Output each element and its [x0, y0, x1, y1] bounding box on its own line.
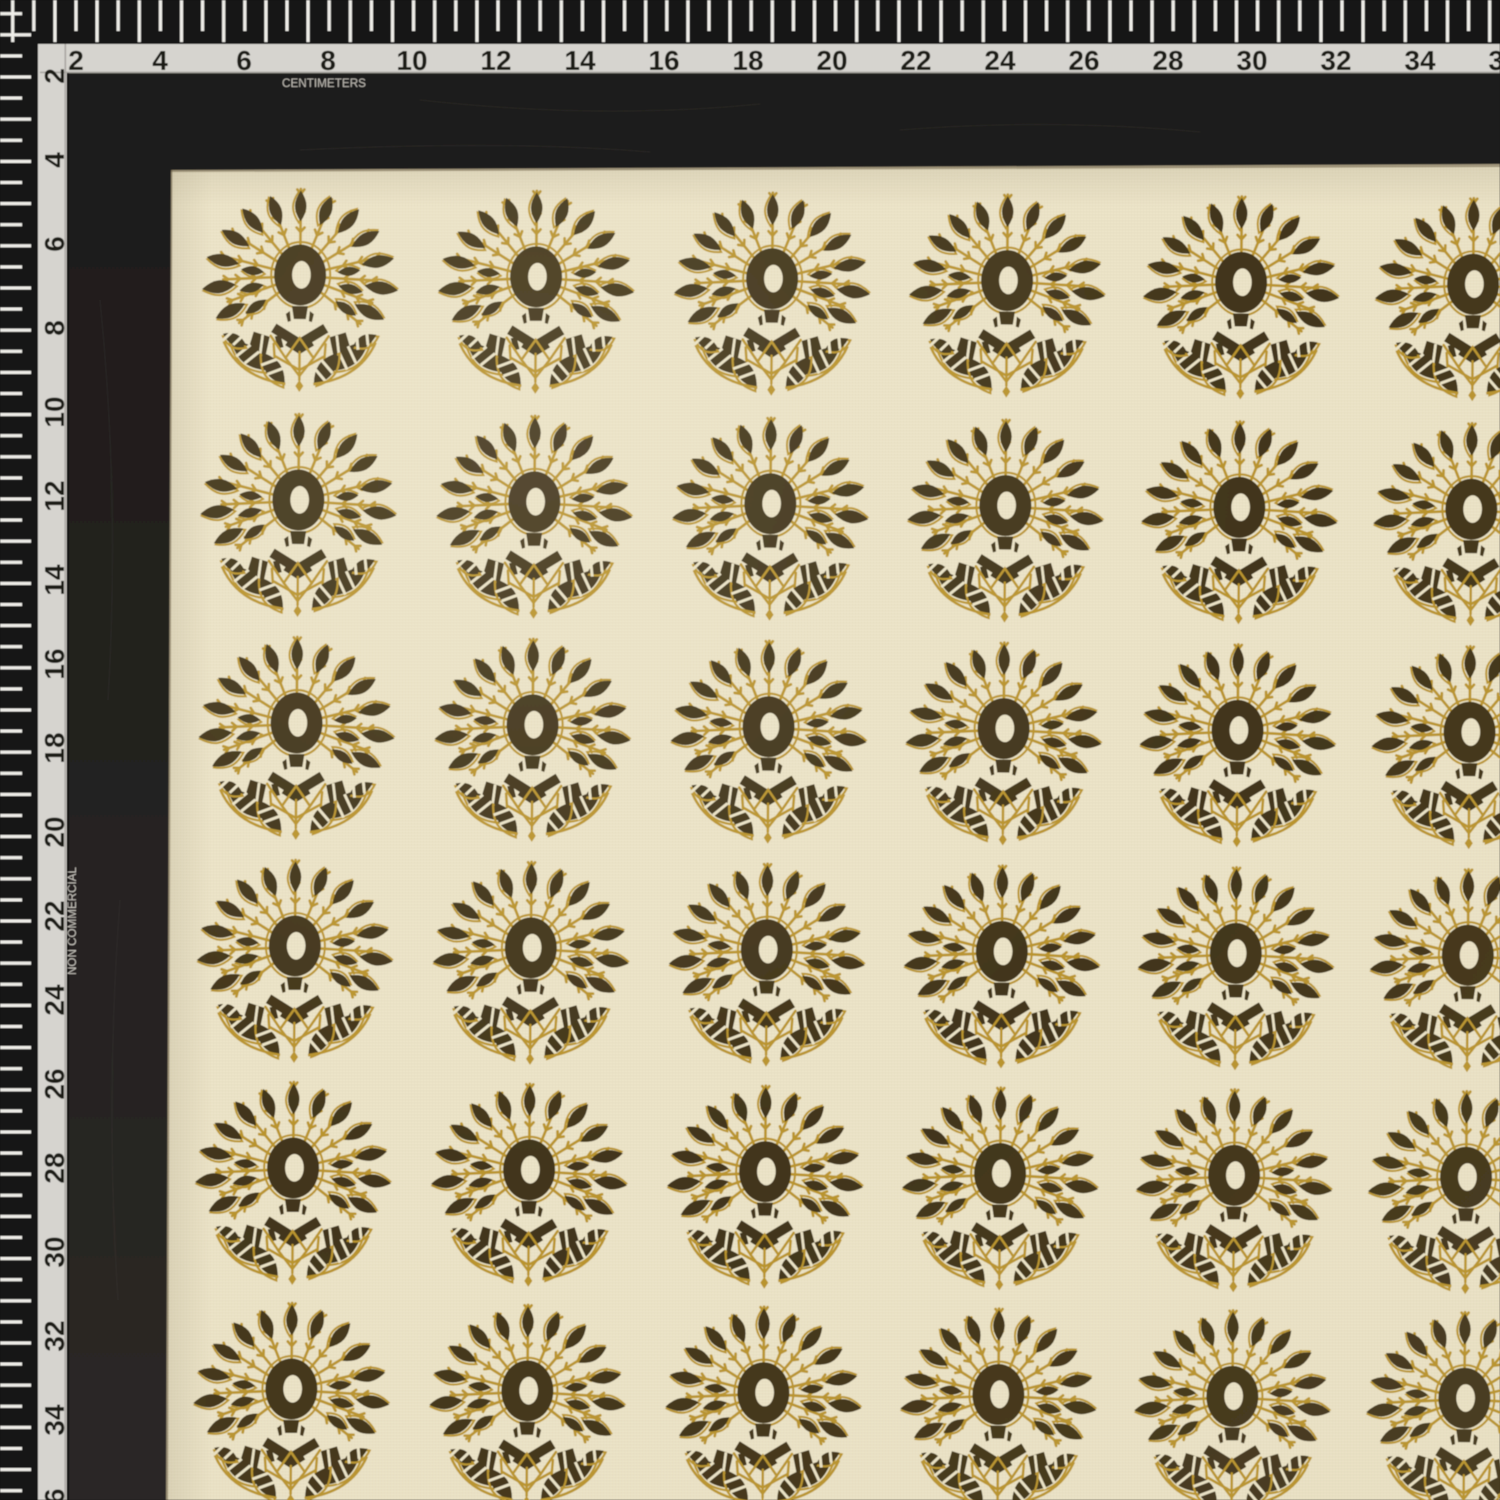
- svg-text:30: 30: [39, 1236, 70, 1267]
- svg-text:32: 32: [1320, 45, 1351, 76]
- svg-text:34: 34: [39, 1404, 70, 1436]
- svg-text:20: 20: [816, 45, 847, 76]
- svg-text:32: 32: [39, 1320, 70, 1351]
- svg-text:12: 12: [480, 45, 511, 76]
- svg-text:6: 6: [236, 45, 252, 76]
- svg-text:28: 28: [1152, 45, 1183, 76]
- svg-text:16: 16: [39, 648, 70, 679]
- svg-text:36: 36: [1488, 45, 1500, 76]
- svg-text:2: 2: [39, 68, 70, 84]
- svg-text:14: 14: [564, 45, 596, 76]
- svg-text:4: 4: [39, 152, 70, 168]
- svg-text:14: 14: [39, 564, 70, 596]
- svg-text:18: 18: [39, 732, 70, 763]
- svg-text:36: 36: [39, 1488, 70, 1500]
- svg-text:26: 26: [1068, 45, 1099, 76]
- svg-text:30: 30: [1236, 45, 1267, 76]
- svg-text:8: 8: [320, 45, 336, 76]
- svg-text:CENTIMETERS: CENTIMETERS: [282, 76, 366, 90]
- svg-text:16: 16: [648, 45, 679, 76]
- svg-text:12: 12: [39, 480, 70, 511]
- svg-text:34: 34: [1404, 45, 1436, 76]
- svg-text:28: 28: [39, 1152, 70, 1183]
- svg-text:8: 8: [39, 320, 70, 336]
- svg-text:24: 24: [39, 984, 70, 1016]
- svg-text:2: 2: [68, 45, 84, 76]
- svg-text:22: 22: [39, 900, 70, 931]
- svg-text:10: 10: [396, 45, 427, 76]
- svg-text:4: 4: [152, 45, 168, 76]
- svg-text:24: 24: [984, 45, 1016, 76]
- svg-text:26: 26: [39, 1068, 70, 1099]
- svg-text:20: 20: [39, 816, 70, 847]
- svg-text:6: 6: [39, 236, 70, 252]
- svg-text:10: 10: [39, 396, 70, 427]
- svg-text:NON COMMERCIAL: NON COMMERCIAL: [67, 866, 79, 975]
- svg-text:18: 18: [732, 45, 763, 76]
- svg-text:22: 22: [900, 45, 931, 76]
